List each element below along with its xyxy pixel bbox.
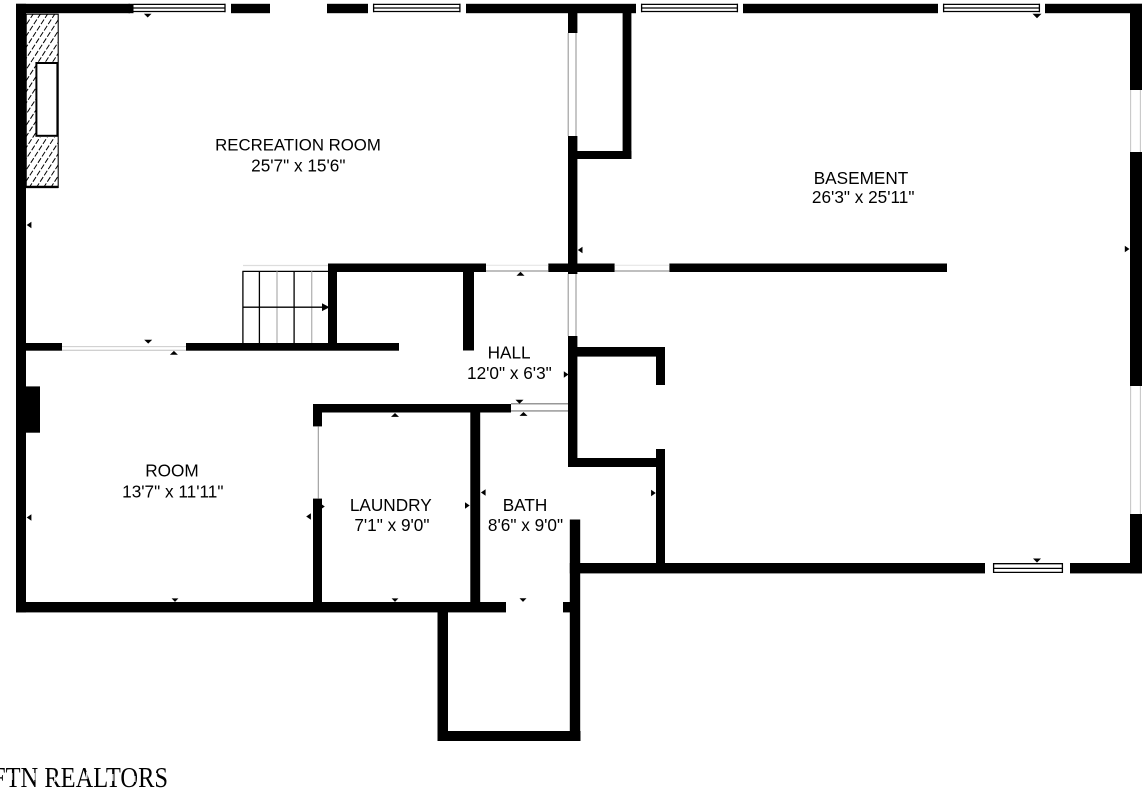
svg-text:FTN REALTORS: FTN REALTORS <box>0 763 168 792</box>
svg-text:RECREATION ROOM: RECREATION ROOM <box>215 136 381 155</box>
svg-text:HALL: HALL <box>488 342 531 362</box>
svg-text:BATH: BATH <box>503 495 548 515</box>
svg-text:LAUNDRY: LAUNDRY <box>350 495 432 515</box>
svg-text:25'7" x 15'6": 25'7" x 15'6" <box>251 155 345 175</box>
svg-text:7'1" x 9'0": 7'1" x 9'0" <box>354 515 429 535</box>
svg-text:8'6" x 9'0": 8'6" x 9'0" <box>488 515 563 535</box>
svg-text:12'0" x 6'3": 12'0" x 6'3" <box>467 363 552 383</box>
svg-text:26'3" x 25'11": 26'3" x 25'11" <box>812 187 915 207</box>
svg-text:13'7" x 11'11": 13'7" x 11'11" <box>122 482 223 502</box>
svg-text:BASEMENT: BASEMENT <box>814 168 909 188</box>
svg-text:ROOM: ROOM <box>145 461 198 481</box>
